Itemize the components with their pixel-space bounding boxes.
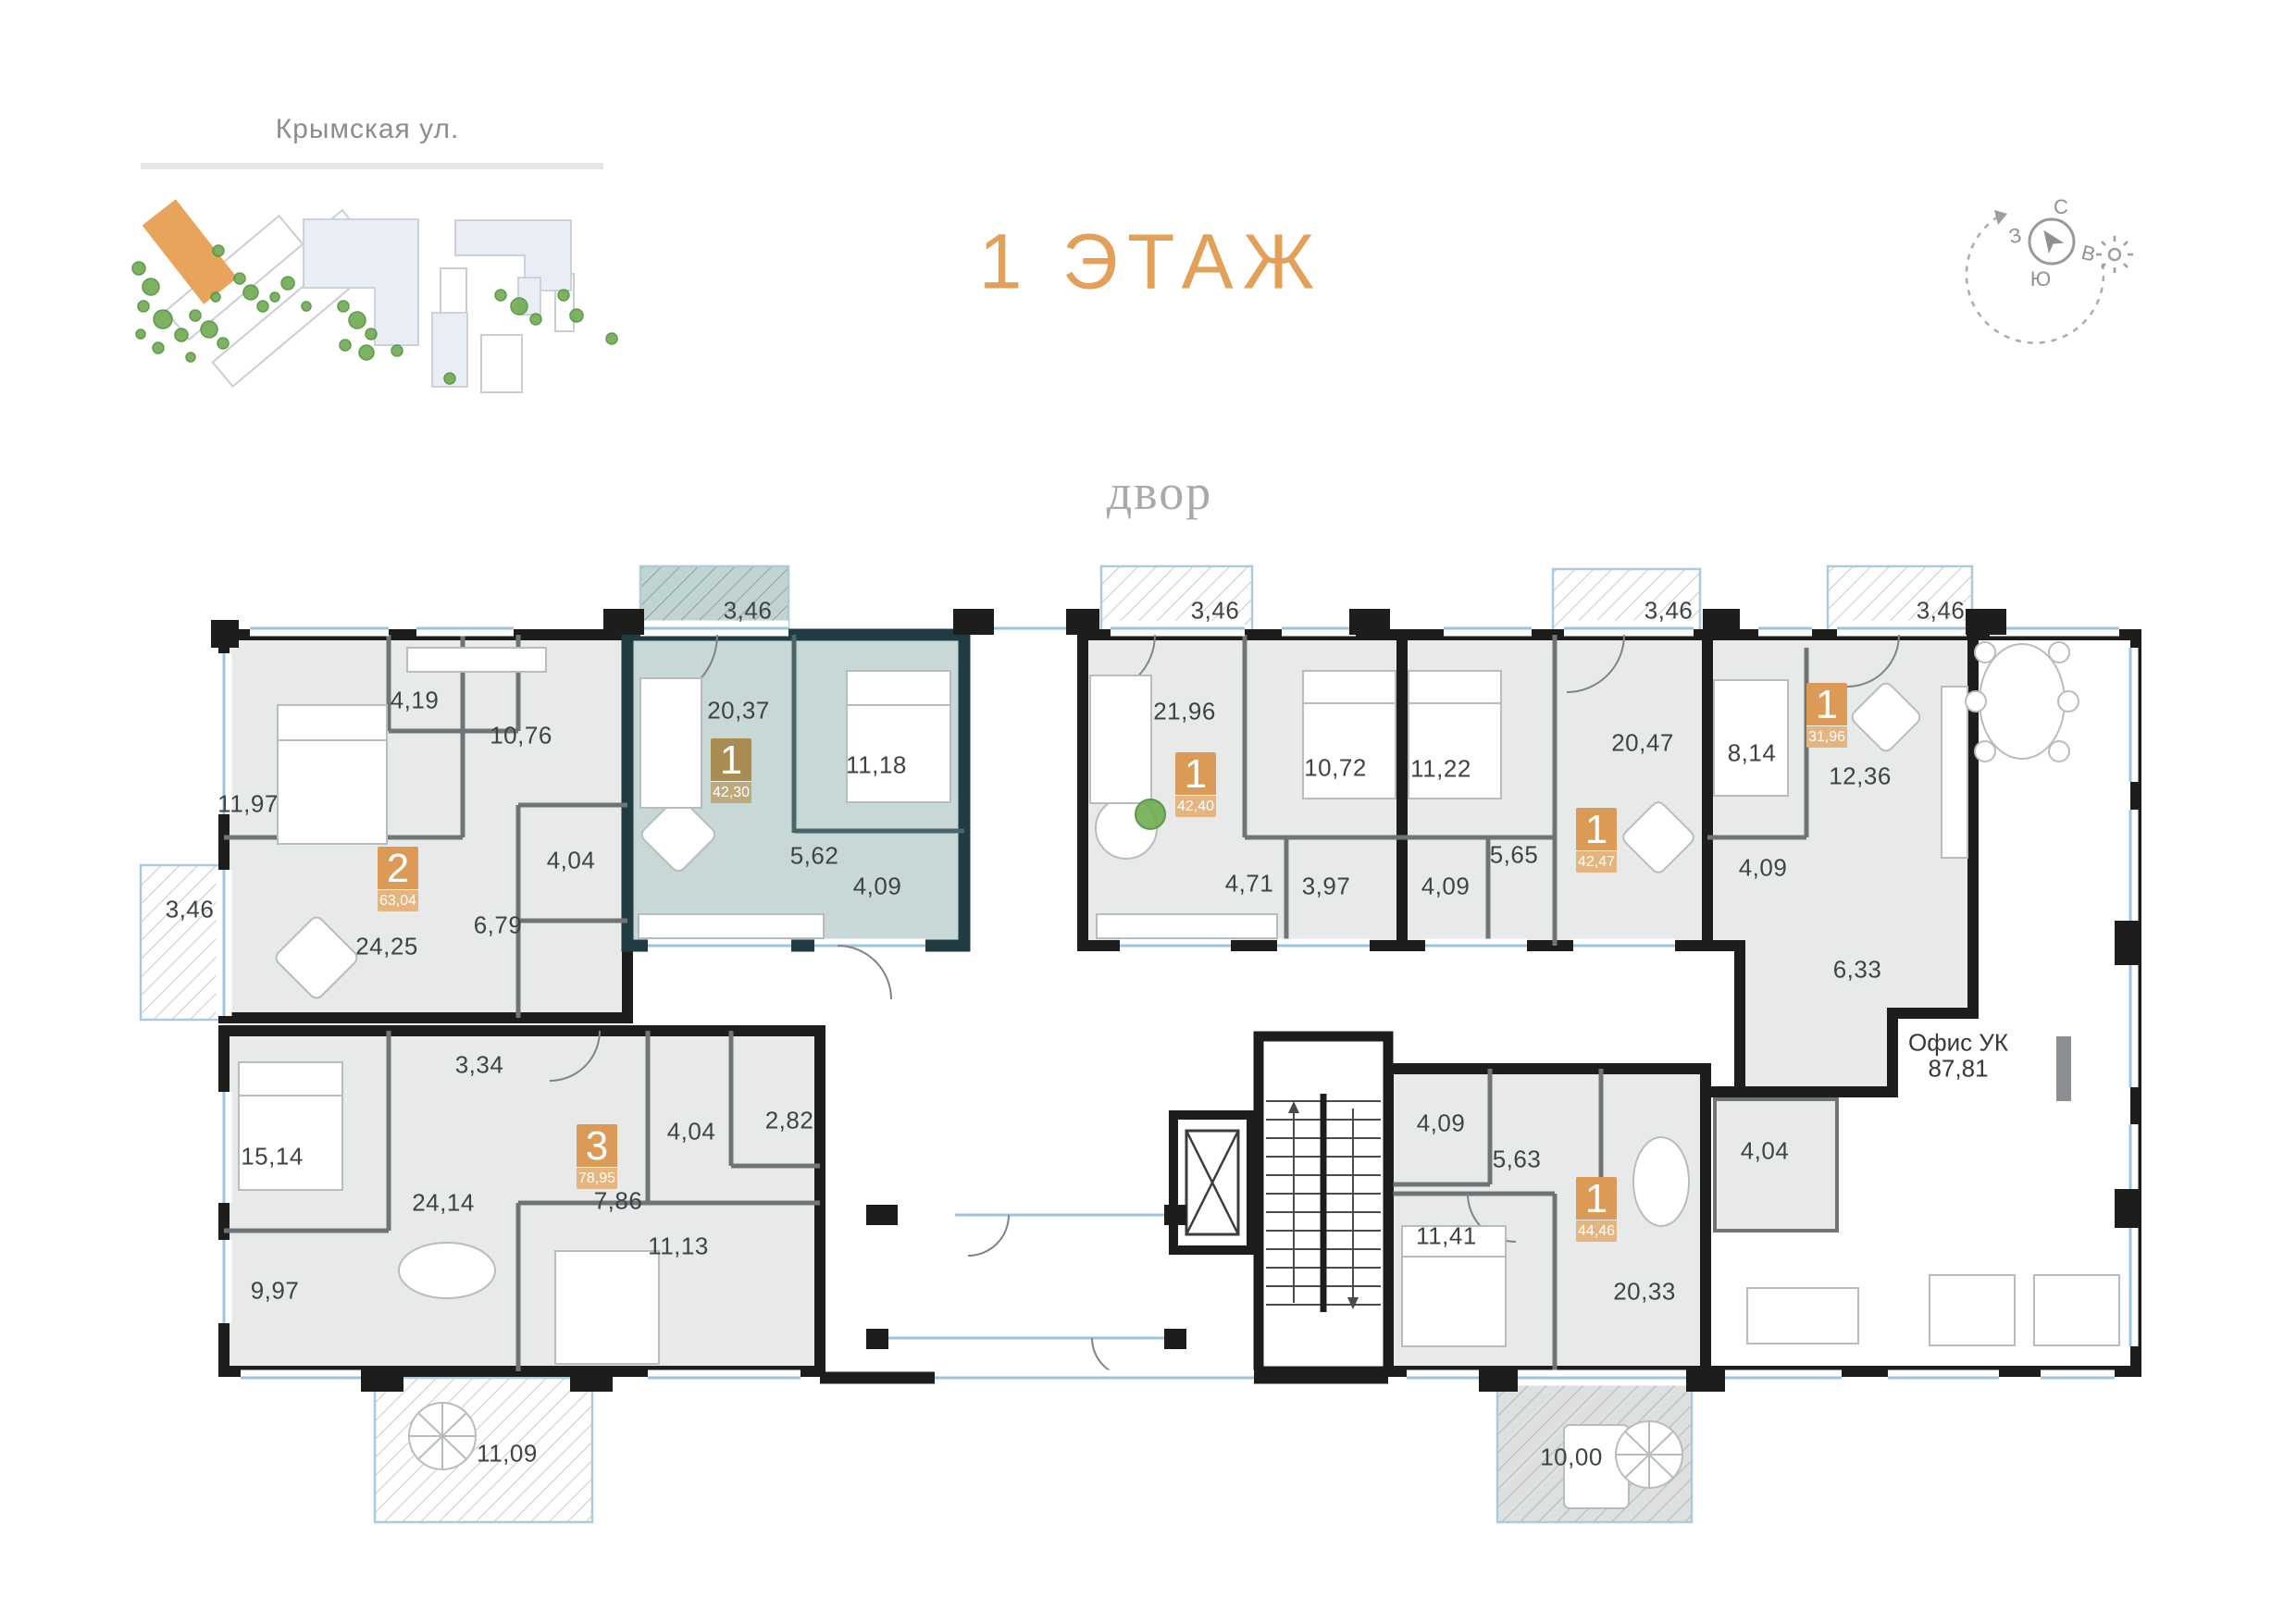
room-area-label: 3,97: [1302, 873, 1351, 901]
floor-plan-page: С З В Ю: [0, 0, 2296, 1623]
room-area-label: 20,47: [1611, 729, 1674, 758]
room-area-label: 9,97: [251, 1277, 300, 1306]
room-area-label: 12,36: [1829, 762, 1892, 791]
compass-south-label: Ю: [2030, 267, 2051, 291]
room-area-label: 4,71: [1225, 870, 1274, 898]
room-area-label: 11,41: [1416, 1222, 1477, 1251]
room-area-label: 11,22: [1410, 755, 1471, 784]
room-area-label: 21,96: [1153, 698, 1216, 726]
stair-core: [1259, 1036, 1388, 1371]
room-area-label: 10,00: [1540, 1443, 1603, 1472]
room-area-label: 4,09: [853, 873, 902, 901]
street-label: Крымская ул.: [276, 114, 460, 145]
apartment-rooms-count: 1: [1576, 1177, 1617, 1220]
apartment-badge[interactable]: 131,96: [1806, 683, 1847, 748]
apartment-badge[interactable]: 142,40: [1175, 752, 1216, 817]
room-area-label: 4,09: [1739, 854, 1788, 883]
room-area-label: 24,14: [412, 1189, 475, 1218]
room-area-label: 10,72: [1304, 754, 1367, 783]
room-area-label: 3,46: [166, 896, 215, 924]
room-area-label: 6,33: [1833, 956, 1882, 985]
apartment-rooms-count: 1: [1806, 683, 1847, 725]
room-area-label: 11,09: [477, 1440, 538, 1468]
apartment-badge[interactable]: 142,47: [1576, 808, 1617, 873]
room-area-label: 7,86: [594, 1187, 643, 1216]
apartment-badge[interactable]: 144,46: [1576, 1177, 1617, 1242]
apartment-total-area: 42,40: [1175, 795, 1216, 817]
room-area-label: 3,46: [1644, 597, 1694, 626]
room-area-label: 10,76: [490, 722, 552, 750]
room-area-label: 4,09: [1417, 1109, 1466, 1138]
room-area-label: 4,04: [1741, 1137, 1790, 1166]
apartment-total-area: 78,95: [577, 1167, 617, 1189]
apartment-rooms-count: 1: [711, 738, 751, 781]
office-area-label: 87,81: [1928, 1055, 1988, 1084]
compass-arc-arrow: [1994, 210, 2007, 225]
room-area-label: 24,25: [355, 933, 418, 961]
room-area-label: 4,04: [547, 847, 596, 875]
room-area-label: 15,14: [241, 1143, 304, 1171]
apartment-rooms-count: 1: [1576, 808, 1617, 850]
apartment-rooms-count: 1: [1175, 752, 1216, 795]
room-area-label: 8,14: [1728, 739, 1777, 768]
sun-icon: [2096, 236, 2133, 273]
room-area-label: 4,19: [391, 687, 440, 715]
room-area-label: 5,63: [1493, 1146, 1542, 1174]
terrace-umbrella-left: [409, 1403, 476, 1469]
room-area-label: 20,33: [1613, 1278, 1676, 1307]
room-area-label: 4,04: [667, 1118, 716, 1146]
courtyard-label: двор: [1107, 464, 1213, 521]
elevator: [1173, 1115, 1251, 1250]
apartment-rooms-count: 2: [378, 847, 418, 889]
apartment-total-area: 31,96: [1806, 725, 1847, 748]
compass-north-label: С: [2054, 195, 2068, 218]
apartment-total-area: 42,47: [1576, 850, 1617, 873]
entrance-lobby: [866, 1205, 1186, 1377]
room-area-label: 5,62: [790, 842, 839, 871]
street-line: [141, 163, 603, 169]
apartment-total-area: 42,30: [711, 781, 751, 803]
plant-icon: [1136, 799, 1165, 829]
site-plan: [132, 163, 617, 392]
apartment-total-area: 63,04: [378, 889, 418, 911]
apartment-badge[interactable]: 263,04: [378, 847, 418, 911]
compass-west-label: З: [2006, 223, 2023, 248]
room-area-label: 3,46: [724, 597, 773, 626]
compass: С З В Ю: [1967, 195, 2133, 343]
room-area-label: 3,34: [455, 1051, 504, 1080]
office-divider: [2056, 1036, 2071, 1101]
room-area-label: 11,13: [648, 1233, 709, 1261]
apartment-badge[interactable]: 142,30: [711, 738, 751, 803]
room-area-label: 2,82: [765, 1107, 814, 1135]
room-area-label: 3,46: [1191, 597, 1240, 626]
room-area-label: 20,37: [707, 697, 770, 725]
room-area-label: 11,97: [217, 790, 279, 819]
room-area-label: 6,79: [474, 911, 523, 940]
office-name-label: Офис УК: [1908, 1029, 2008, 1058]
apartment-badge[interactable]: 378,95: [577, 1124, 617, 1189]
page-title: 1 ЭТАЖ: [979, 217, 1324, 307]
apartment-total-area: 44,46: [1576, 1220, 1617, 1242]
room-area-label: 5,65: [1490, 841, 1539, 870]
room-area-label: 4,09: [1421, 873, 1471, 901]
room-area-label: 3,46: [1917, 597, 1966, 626]
compass-east-label: В: [2079, 241, 2098, 266]
balcony-left: [141, 865, 224, 1020]
room-area-label: 11,18: [846, 751, 907, 780]
apartment-rooms-count: 3: [577, 1124, 617, 1167]
